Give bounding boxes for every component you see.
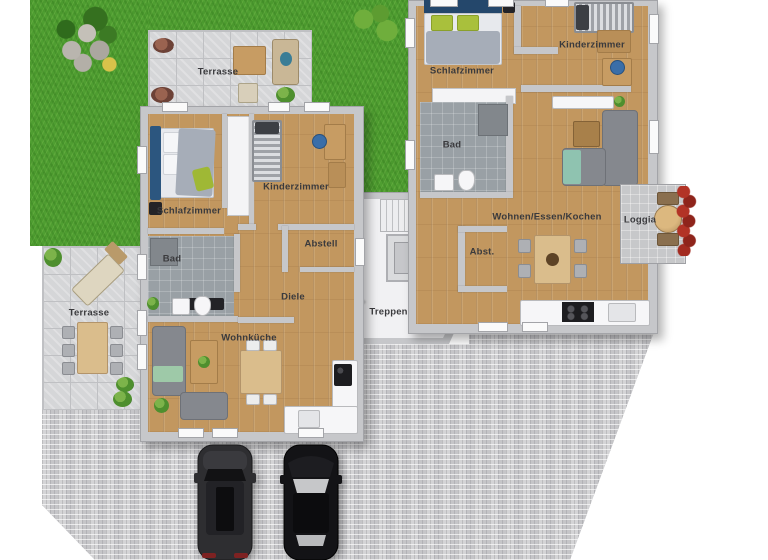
window [298, 428, 324, 438]
window [268, 102, 290, 112]
shrub-icon [151, 87, 174, 103]
terrace-chair [238, 83, 258, 103]
garden-chair [62, 326, 75, 339]
room-label-kinderzimmer-left: Kinderzimmer [263, 182, 329, 193]
desk-chair [610, 60, 625, 75]
dining-chair [518, 239, 531, 253]
window [430, 0, 458, 7]
room-label-wohnen-essen-kochen: Wohnen/Essen/Kochen [492, 212, 601, 223]
wall [458, 286, 507, 292]
bush-icon [113, 391, 132, 407]
window [649, 14, 659, 44]
toilet [194, 296, 211, 316]
window [304, 102, 330, 112]
coffee-table [573, 121, 600, 147]
window [162, 102, 188, 112]
floor-plan: Terrasse Terrasse Treppenhaus [0, 0, 768, 560]
sofa [180, 392, 228, 420]
shower [478, 104, 508, 136]
window [545, 0, 569, 7]
kitchen-sink [298, 410, 320, 428]
wall [234, 234, 240, 292]
grass-tufts [348, 4, 400, 42]
wall [458, 226, 465, 292]
wall [521, 85, 631, 92]
desk-chair [312, 134, 327, 149]
kitchen-sink [608, 303, 636, 322]
room-label-bad-right: Bad [443, 140, 462, 151]
bush-icon [44, 248, 62, 267]
bush-icon [116, 377, 134, 392]
hall-closet [227, 116, 251, 216]
room-label-wohnkueche: Wohnküche [221, 333, 276, 344]
room-label-kinderzimmer-right: Kinderzimmer [559, 40, 625, 51]
window [355, 238, 365, 266]
wall [148, 316, 238, 322]
wall [282, 226, 288, 272]
dining-chair [246, 394, 260, 405]
garden-chair [110, 326, 123, 339]
wall [238, 317, 294, 323]
plant-icon [614, 96, 625, 107]
garden-chair [62, 344, 75, 357]
room-label-terrasse-bottom: Terrasse [69, 308, 110, 319]
window [405, 140, 415, 170]
window [488, 0, 514, 7]
room-label-loggia: Loggia [624, 215, 656, 226]
wall [514, 47, 558, 54]
dining-chair [518, 264, 531, 278]
toilet [458, 170, 475, 191]
bed-pillow [431, 15, 453, 31]
dining-chair [263, 394, 277, 405]
room-label-terrasse-top: Terrasse [198, 67, 239, 78]
wardrobe [328, 162, 346, 188]
dining-chair [574, 264, 587, 278]
wall [420, 192, 513, 198]
parked-car [194, 443, 256, 560]
room-label-abstell: Abstell [304, 239, 337, 250]
sofa [602, 110, 638, 186]
washbasin [434, 174, 454, 191]
window [137, 310, 147, 336]
wall [148, 228, 224, 234]
window [137, 344, 147, 370]
garden-chair [110, 362, 123, 375]
desk [324, 124, 346, 160]
bed-blanket [426, 31, 500, 64]
rock-garden [52, 2, 122, 80]
wall [458, 226, 507, 232]
garden-chair [110, 344, 123, 357]
plant-icon [198, 356, 210, 368]
sofa-throw [563, 150, 581, 184]
dining-chair [574, 239, 587, 253]
window [522, 322, 548, 332]
stove-cooktop [334, 364, 352, 386]
sofa-throw [153, 366, 183, 382]
flower-box [674, 186, 698, 256]
window [137, 146, 147, 174]
wall [278, 224, 354, 230]
wall [300, 267, 354, 272]
plant-icon [154, 398, 169, 413]
window [405, 18, 415, 48]
bed-pillow [457, 15, 479, 31]
fruit-bowl [546, 253, 559, 266]
kids-bed-pillow [576, 5, 589, 30]
room-label-schlafzimmer-left: Schlafzimmer [157, 206, 221, 217]
bed-headboard [150, 126, 161, 200]
garden-table [77, 322, 108, 374]
bench-cushion [280, 52, 292, 66]
bush-icon [276, 87, 295, 103]
room-label-abst: Abst. [470, 247, 495, 258]
wall [238, 224, 256, 230]
window [178, 428, 204, 438]
plant-icon [147, 297, 159, 310]
washbasin [172, 298, 190, 315]
room-label-diele: Diele [281, 292, 305, 303]
kids-bed-pillow [255, 122, 279, 134]
shrub-icon [153, 38, 174, 53]
parked-car [280, 443, 342, 560]
room-label-bad-left: Bad [163, 254, 182, 265]
window [137, 254, 147, 280]
stove-cooktop [562, 302, 594, 322]
lowboard [552, 96, 614, 109]
dining-table [240, 350, 282, 394]
room-label-schlafzimmer-right: Schlafzimmer [430, 66, 494, 77]
sofa [152, 326, 186, 396]
garden-chair [62, 362, 75, 375]
window [212, 428, 238, 438]
window [649, 120, 659, 154]
window [478, 322, 508, 332]
